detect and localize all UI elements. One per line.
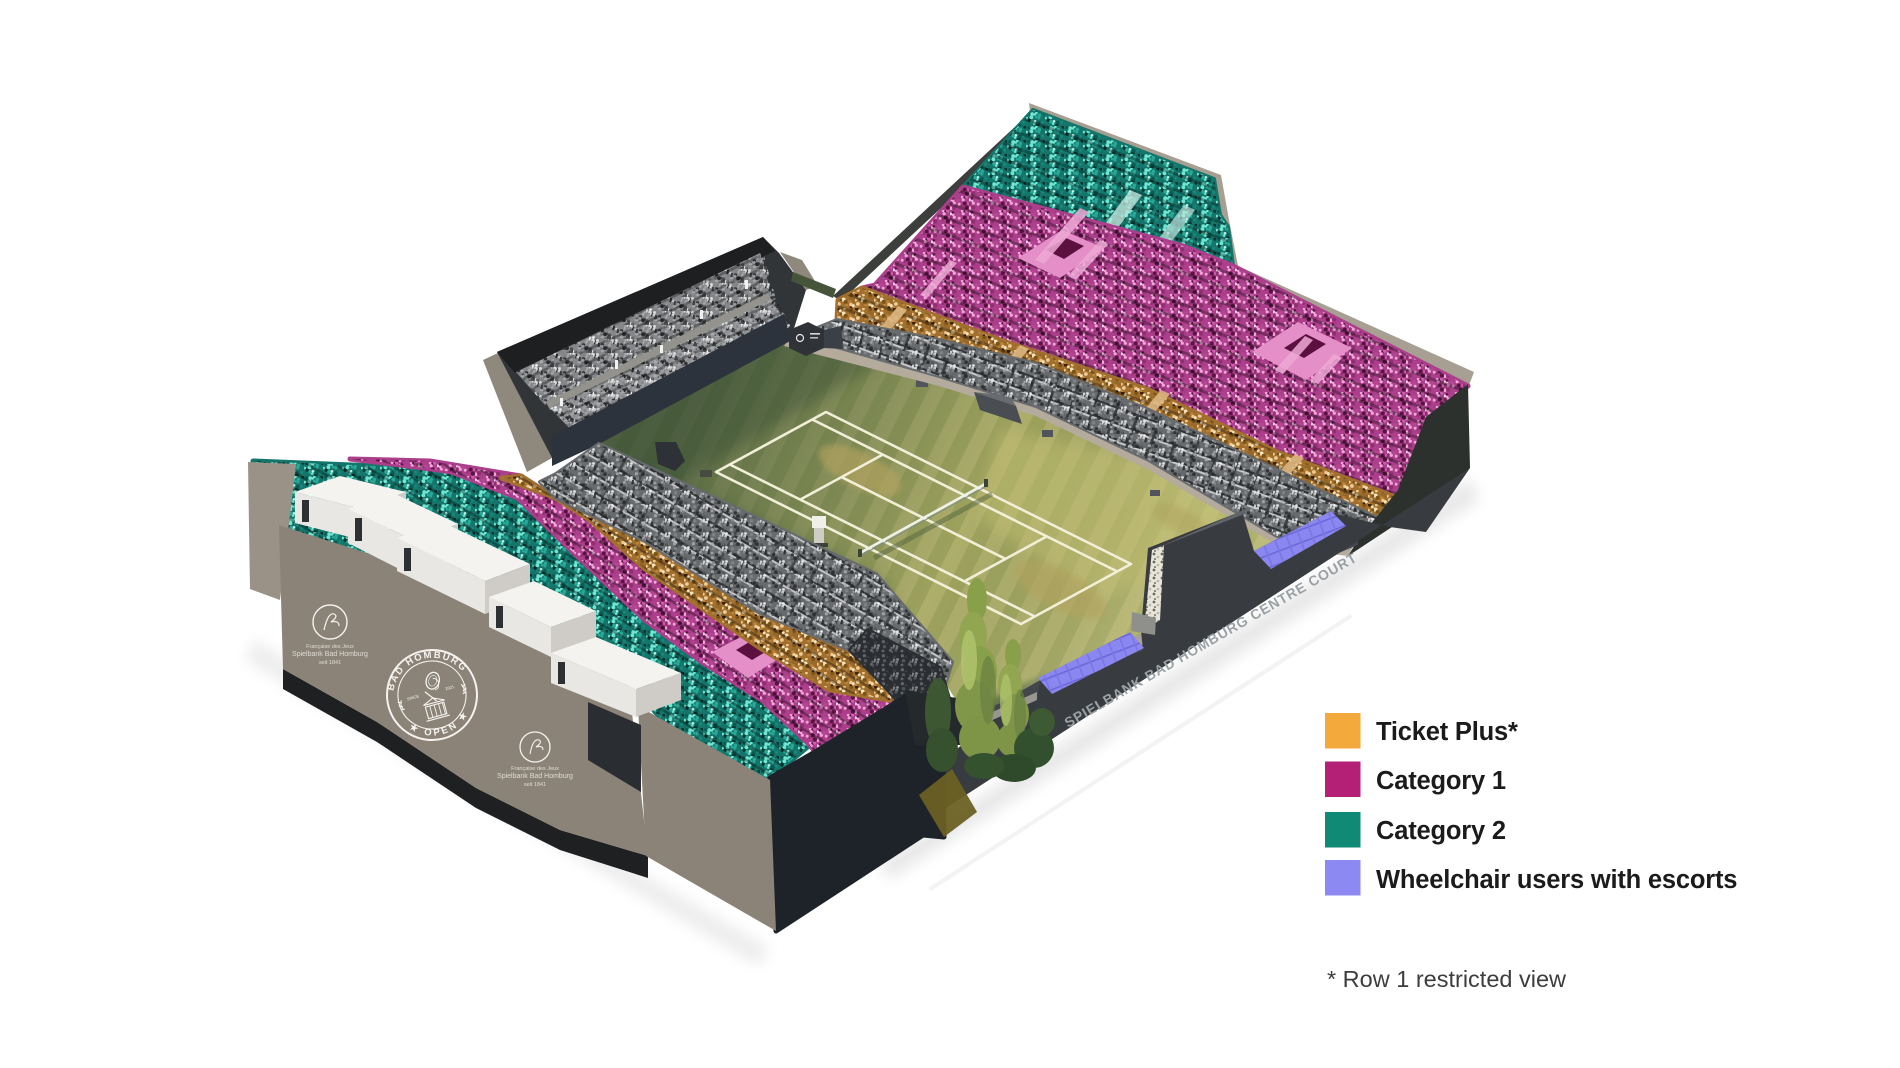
svg-text:Française des Jeux: Française des Jeux <box>306 644 354 650</box>
svg-text:seit 1841: seit 1841 <box>524 782 546 788</box>
svg-text:Française des Jeux: Française des Jeux <box>511 766 559 772</box>
svg-text:seit 1841: seit 1841 <box>319 660 341 666</box>
svg-text:Spielbank Bad Homburg: Spielbank Bad Homburg <box>497 773 573 780</box>
svg-text:* Row 1 restricted view: * Row 1 restricted view <box>1327 966 1567 992</box>
svg-text:Spielbank Bad Homburg: Spielbank Bad Homburg <box>292 651 368 658</box>
svg-text:Wheelchair users with escorts: Wheelchair users with escorts <box>1376 866 1737 894</box>
svg-text:Ticket Plus*: Ticket Plus* <box>1376 718 1518 746</box>
svg-text:Category 1: Category 1 <box>1376 767 1506 795</box>
svg-text:Category 2: Category 2 <box>1376 817 1506 845</box>
